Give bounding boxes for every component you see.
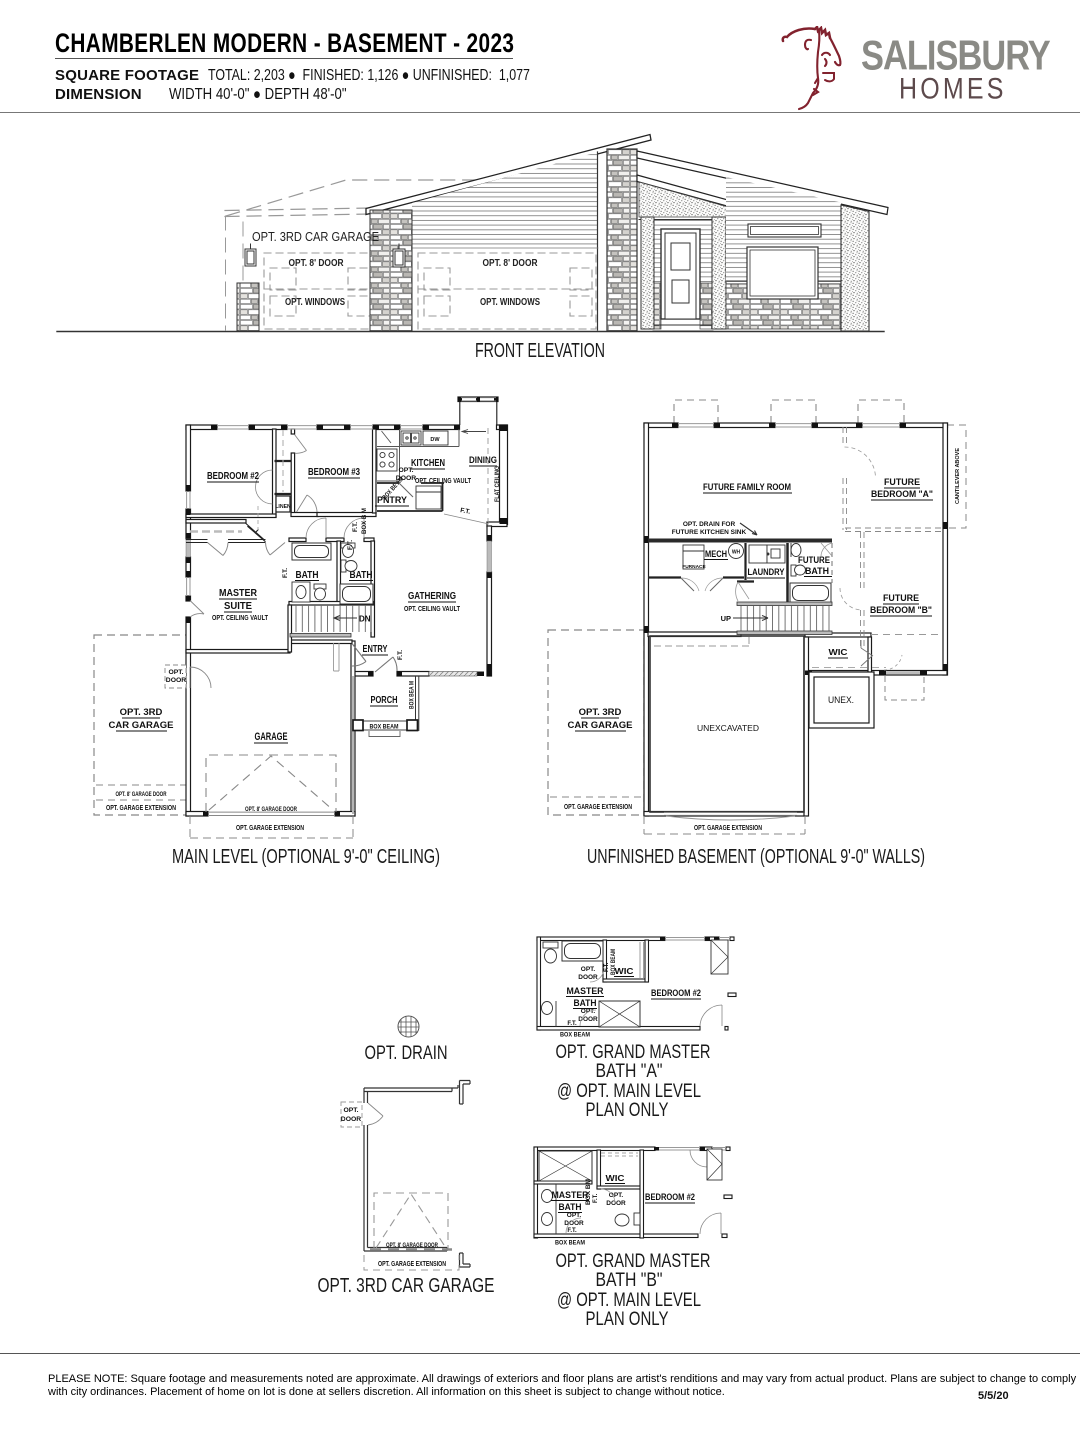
svg-text:OPT. DRAIN FOR: OPT. DRAIN FOR — [683, 521, 736, 528]
svg-text:DOOR: DOOR — [341, 1116, 361, 1123]
svg-text:OPT. CEILING VAULT: OPT. CEILING VAULT — [212, 615, 269, 622]
svg-text:PNTRY: PNTRY — [377, 495, 408, 506]
svg-text:BATH: BATH — [805, 566, 829, 576]
svg-text:F.T.: F.T. — [347, 540, 354, 550]
svg-text:FUTURE KITCHEN SINK: FUTURE KITCHEN SINK — [672, 529, 747, 536]
svg-text:BOX BEAM: BOX BEAM — [560, 1032, 590, 1039]
svg-text:BOX BEA M: BOX BEA M — [409, 681, 416, 709]
svg-text:OPT. 3RD CAR GARAGE: OPT. 3RD CAR GARAGE — [318, 1275, 495, 1297]
svg-text:DOOR: DOOR — [166, 677, 186, 684]
svg-text:OPT.: OPT. — [168, 669, 183, 676]
svg-text:WH: WH — [732, 550, 741, 556]
svg-text:F.T.: F.T. — [282, 568, 289, 578]
svg-text:OPT. GARAGE EXTENSION: OPT. GARAGE EXTENSION — [694, 823, 762, 832]
svg-text:BEDROOM #2: BEDROOM #2 — [207, 471, 259, 482]
svg-text:MECH: MECH — [705, 549, 727, 559]
svg-text:ENTRY: ENTRY — [363, 644, 388, 655]
svg-text:MASTER: MASTER — [552, 1190, 589, 1200]
svg-text:GATHERING: GATHERING — [408, 591, 456, 602]
svg-text:OPT.: OPT. — [581, 1008, 596, 1015]
svg-text:BEDROOM "B": BEDROOM "B" — [870, 605, 932, 616]
svg-text:PLAN ONLY: PLAN ONLY — [586, 1308, 669, 1330]
svg-text:UNFINISHED BASEMENT (OPTIONAL: UNFINISHED BASEMENT (OPTIONAL 9'-0" WALL… — [587, 846, 925, 868]
svg-text:F.T.: F.T. — [397, 650, 404, 660]
svg-text:FRONT ELEVATION: FRONT ELEVATION — [475, 340, 605, 362]
svg-text:WIC: WIC — [615, 966, 634, 976]
svg-text:F.T.: F.T. — [604, 962, 610, 972]
svg-text:FUTURE: FUTURE — [883, 593, 919, 604]
svg-text:LAUNDRY: LAUNDRY — [748, 567, 786, 578]
svg-text:BOX BEAM: BOX BEAM — [555, 1240, 585, 1247]
svg-text:MASTER: MASTER — [219, 587, 257, 599]
svg-text:OPT. 3RD: OPT. 3RD — [120, 707, 163, 718]
svg-text:BATH: BATH — [559, 1202, 582, 1212]
svg-text:SUITE: SUITE — [224, 600, 252, 612]
svg-text:BOX B M: BOX B M — [361, 508, 368, 534]
svg-text:UNEX.: UNEX. — [828, 695, 854, 705]
svg-text:FURNACE: FURNACE — [682, 564, 706, 570]
svg-text:F.T.: F.T. — [352, 522, 359, 532]
svg-text:BEDROOM #2: BEDROOM #2 — [645, 1192, 695, 1202]
svg-text:BOX BEAM: BOX BEAM — [611, 949, 617, 975]
svg-text:PLAN ONLY: PLAN ONLY — [586, 1099, 669, 1121]
svg-text:BEDROOM "A": BEDROOM "A" — [871, 489, 933, 500]
svg-text:FUTURE FAMILY ROOM: FUTURE FAMILY ROOM — [703, 482, 791, 492]
svg-text:CANTILEVER ABOVE: CANTILEVER ABOVE — [955, 448, 961, 504]
svg-text:DOOR: DOOR — [578, 974, 598, 981]
svg-text:OPT. DRAIN: OPT. DRAIN — [365, 1042, 448, 1064]
svg-text:OPT. 3RD CAR GARAGE: OPT. 3RD CAR GARAGE — [252, 230, 379, 244]
svg-text:BOX BM: BOX BM — [586, 1179, 592, 1205]
svg-text:OPT. WINDOWS: OPT. WINDOWS — [285, 297, 345, 308]
svg-text:DOOR: DOOR — [606, 1200, 626, 1207]
svg-text:DN: DN — [359, 615, 371, 624]
svg-text:OPT. 8' GARAGE DOOR: OPT. 8' GARAGE DOOR — [245, 806, 297, 813]
svg-text:PORCH: PORCH — [371, 695, 398, 706]
svg-text:BATH "A": BATH "A" — [596, 1060, 663, 1082]
svg-text:BEDROOM #3: BEDROOM #3 — [308, 467, 360, 478]
svg-text:KITCHEN: KITCHEN — [411, 458, 445, 469]
svg-text:FUTURE: FUTURE — [798, 555, 830, 565]
svg-text:BEDROOM #2: BEDROOM #2 — [651, 988, 701, 998]
svg-text:OPT. CEILING VAULT: OPT. CEILING VAULT — [404, 606, 461, 613]
svg-text:OPT. 8' DOOR: OPT. 8' DOOR — [289, 258, 345, 269]
svg-text:GARAGE: GARAGE — [255, 731, 288, 743]
svg-text:DOOR: DOOR — [564, 1220, 584, 1227]
svg-text:WIC: WIC — [829, 647, 848, 657]
svg-text:OPT. GARAGE EXTENSION: OPT. GARAGE EXTENSION — [378, 1259, 446, 1268]
svg-text:DINING: DINING — [469, 455, 497, 466]
svg-text:OPT. GARAGE EXTENSION: OPT. GARAGE EXTENSION — [106, 803, 176, 812]
svg-text:OPT. WINDOWS: OPT. WINDOWS — [480, 297, 540, 308]
svg-text:MASTER: MASTER — [567, 986, 604, 996]
svg-text:BATH: BATH — [574, 998, 597, 1008]
svg-text:F.T.: F.T. — [567, 1021, 577, 1027]
svg-text:UP: UP — [721, 614, 731, 623]
svg-text:OPT.: OPT. — [398, 467, 413, 474]
svg-text:LINEN: LINEN — [275, 504, 291, 510]
svg-text:CAR GARAGE: CAR GARAGE — [568, 720, 633, 731]
svg-text:OPT. 8' GARAGE DOOR: OPT. 8' GARAGE DOOR — [386, 1242, 438, 1249]
svg-text:FUTURE: FUTURE — [884, 477, 920, 488]
svg-text:F.T.: F.T. — [567, 1228, 577, 1234]
svg-text:FLAT CEILING: FLAT CEILING — [494, 466, 501, 502]
svg-text:BATH "B": BATH "B" — [596, 1269, 663, 1291]
svg-text:CAR GARAGE: CAR GARAGE — [109, 720, 174, 731]
svg-text:BATH: BATH — [296, 570, 319, 581]
svg-text:OPT. GARAGE EXTENSION: OPT. GARAGE EXTENSION — [564, 802, 632, 811]
svg-text:DW: DW — [430, 437, 440, 443]
svg-text:F.T.: F.T. — [460, 507, 471, 516]
svg-text:WIC: WIC — [606, 1173, 625, 1183]
svg-text:OPT. 8' DOOR: OPT. 8' DOOR — [483, 258, 539, 269]
svg-text:F.T.: F.T. — [593, 1193, 599, 1203]
svg-text:MAIN LEVEL (OPTIONAL 9'-0" CEI: MAIN LEVEL (OPTIONAL 9'-0" CEILING) — [172, 846, 440, 868]
svg-text:OPT. 8' GARAGE DOOR: OPT. 8' GARAGE DOOR — [116, 791, 167, 798]
svg-text:OPT.: OPT. — [343, 1107, 358, 1114]
svg-text:OPT. 3RD: OPT. 3RD — [579, 707, 622, 718]
svg-text:OPT. GARAGE EXTENSION: OPT. GARAGE EXTENSION — [236, 823, 304, 832]
svg-text:UNEXCAVATED: UNEXCAVATED — [697, 723, 759, 733]
svg-text:BOX BEAM: BOX BEAM — [370, 724, 399, 731]
svg-text:OPT.: OPT. — [581, 966, 596, 973]
